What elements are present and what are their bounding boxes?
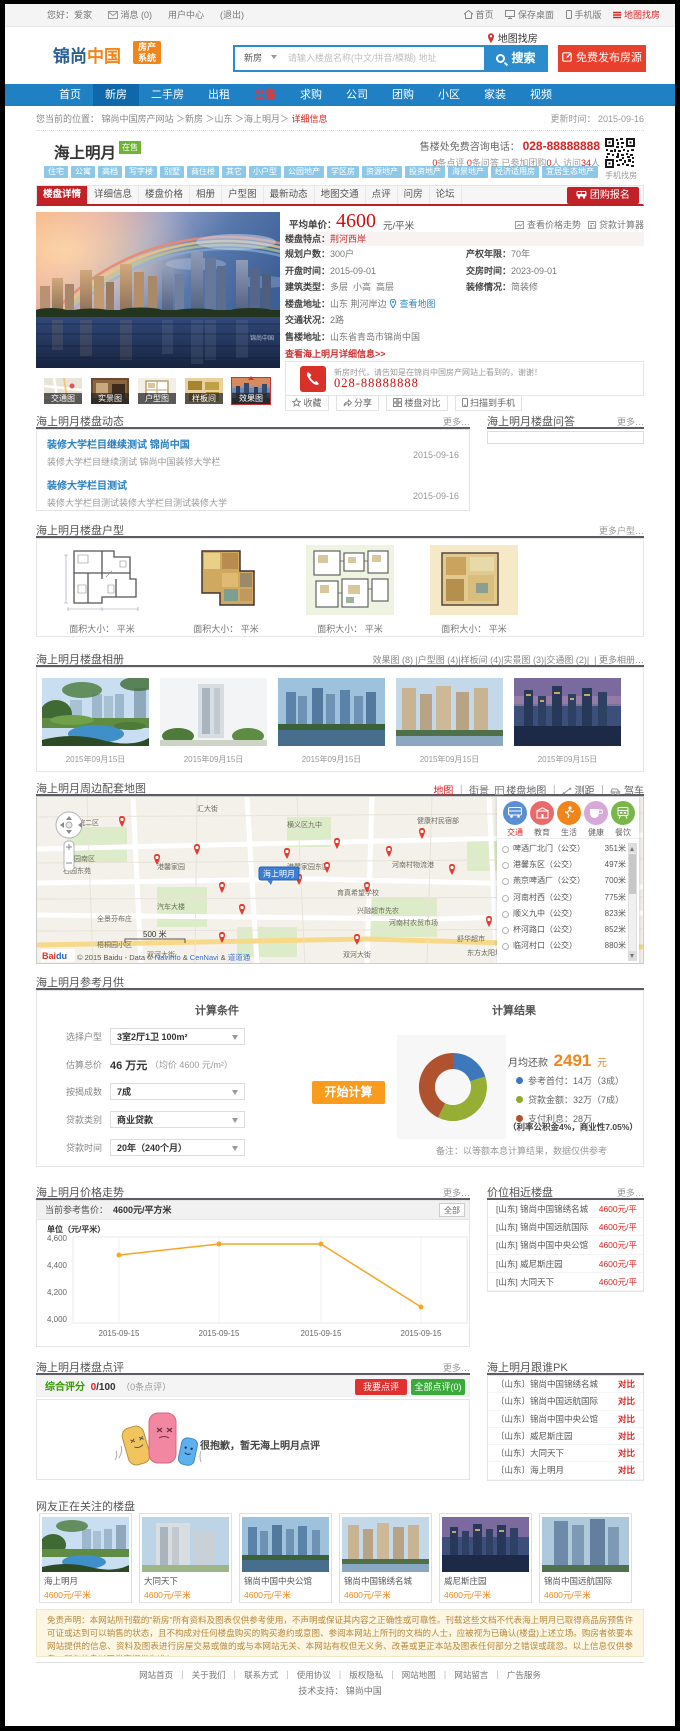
svg-text:健康村民宿部: 健康村民宿部 [417, 816, 459, 825]
svg-text:全景芬布庄: 全景芬布庄 [97, 914, 132, 923]
svg-text:梧桐园小区: 梧桐园小区 [97, 940, 132, 949]
svg-text:2015-09-15: 2015-09-15 [199, 1329, 240, 1338]
svg-text:4,000: 4,000 [47, 1315, 68, 1324]
svg-text:4,200: 4,200 [47, 1288, 68, 1297]
svg-text:Baidu: Baidu [42, 951, 67, 961]
svg-text:4,600: 4,600 [47, 1235, 68, 1243]
svg-text:河南村物流港: 河南村物流港 [392, 860, 434, 869]
svg-text:兴融超市先农: 兴融超市先农 [357, 906, 399, 915]
svg-text:双河大街: 双河大街 [343, 950, 371, 959]
svg-text:2015-09-15: 2015-09-15 [401, 1329, 442, 1338]
svg-text:育真希望学校: 育真希望学校 [337, 888, 379, 897]
svg-text:汇大街: 汇大街 [197, 804, 218, 813]
svg-text:河南村农贸市场: 河南村农贸市场 [389, 918, 438, 927]
svg-text:海上明月: 海上明月 [263, 869, 295, 879]
svg-text:2015-09-15: 2015-09-15 [99, 1329, 140, 1338]
svg-text:© 2015 Baidu - Data © NavInfo: © 2015 Baidu - Data © NavInfo & CenNavi … [77, 952, 251, 962]
svg-text:汽车大楼: 汽车大楼 [157, 902, 185, 911]
svg-text:2015-09-15: 2015-09-15 [301, 1329, 342, 1338]
svg-text:4,400: 4,400 [47, 1261, 68, 1270]
svg-text:锦尚中国: 锦尚中国 [250, 334, 274, 342]
svg-text:舒华超市: 舒华超市 [457, 934, 485, 943]
svg-text:横义区九中: 横义区九中 [287, 820, 322, 829]
svg-text:港馨家园: 港馨家园 [157, 862, 185, 871]
svg-text:500 米: 500 米 [143, 929, 167, 939]
